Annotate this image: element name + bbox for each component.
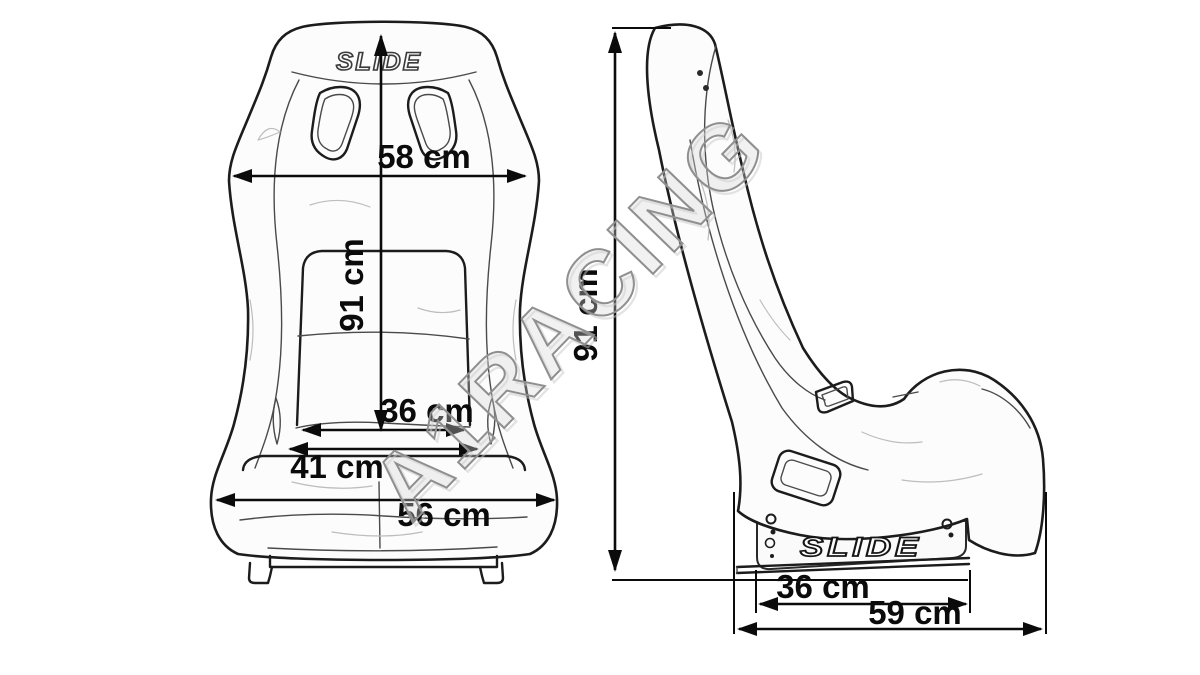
arrow-right-icon xyxy=(1023,622,1043,636)
arrow-left-icon xyxy=(737,622,757,636)
seat-dimension-diagram: SLIDE 91 cm 58 cm 36 cm 41 cm xyxy=(0,0,1200,675)
front-height-label: 91 cm xyxy=(333,238,370,332)
diagram-canvas: SLIDE 91 cm 58 cm 36 cm 41 cm xyxy=(0,0,1200,675)
left-foot xyxy=(249,563,272,583)
side-bracket-length-label: 36 cm xyxy=(776,568,870,605)
front-shoulder-width-label: 58 cm xyxy=(377,138,471,175)
arrow-down-icon xyxy=(608,550,622,572)
side-total-depth-label: 59 cm xyxy=(868,594,962,631)
arrow-left-icon xyxy=(758,597,778,611)
side-view: SLIDE 91 cm 36 cm xyxy=(567,25,1046,636)
side-brand-logo: SLIDE xyxy=(800,532,922,562)
arrow-up-icon xyxy=(608,31,622,53)
